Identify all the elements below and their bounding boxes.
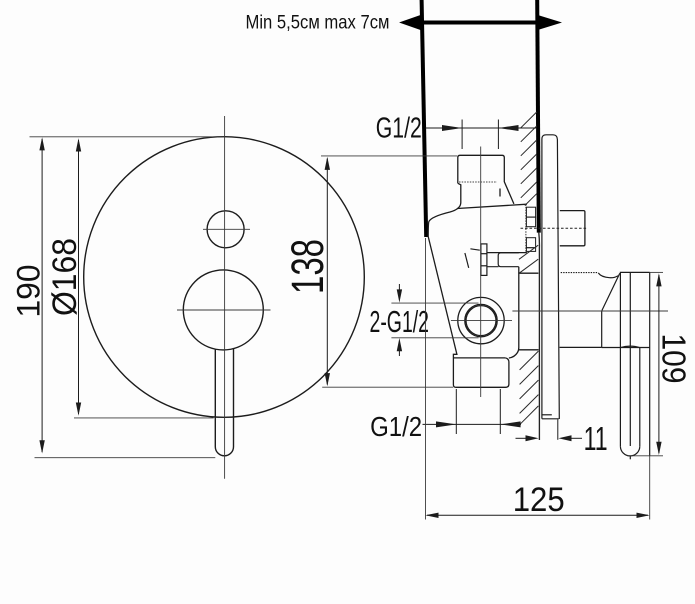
svg-text:G1/2: G1/2 [376, 112, 422, 144]
svg-text:190: 190 [11, 265, 47, 318]
svg-text:2-G1/2: 2-G1/2 [370, 305, 430, 339]
svg-text:109: 109 [656, 334, 693, 384]
svg-text:Min 5,5см max 7см: Min 5,5см max 7см [246, 13, 390, 34]
svg-text:11: 11 [584, 420, 608, 457]
svg-text:Ø168: Ø168 [46, 238, 84, 316]
svg-text:G1/2: G1/2 [370, 411, 422, 442]
svg-text:125: 125 [513, 481, 565, 519]
svg-text:138: 138 [282, 239, 333, 294]
